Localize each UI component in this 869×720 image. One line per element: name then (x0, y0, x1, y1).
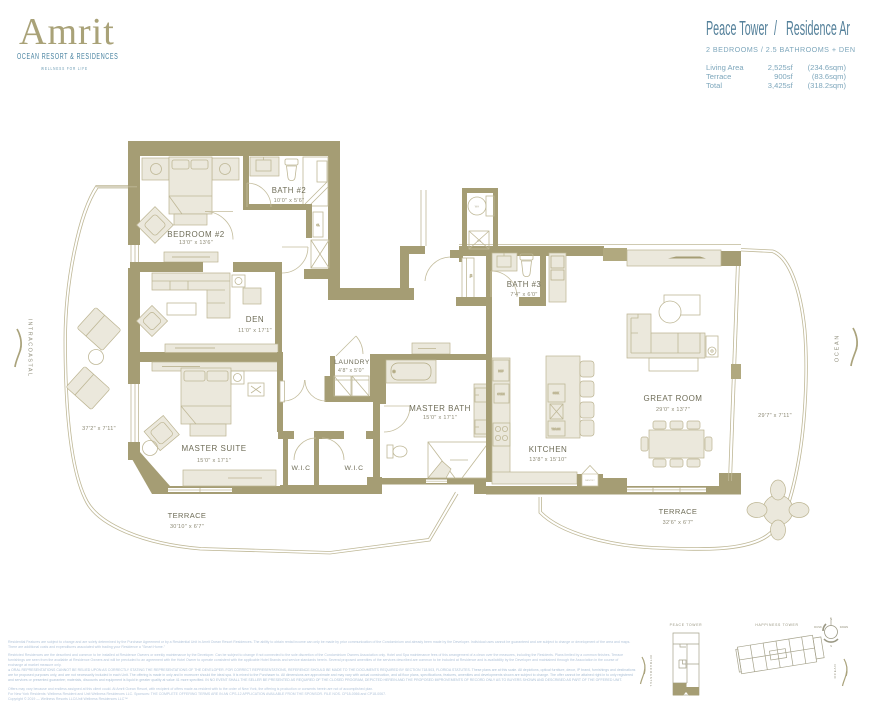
svg-text:TERRACE: TERRACE (168, 511, 207, 520)
svg-text:REF: REF (498, 370, 504, 373)
svg-text:MASTER BATH: MASTER BATH (409, 404, 471, 413)
svg-text:LAUNDRY: LAUNDRY (334, 359, 370, 366)
svg-text:HAPPINESS TOWER: HAPPINESS TOWER (755, 623, 798, 627)
svg-text:BEDROOM #2: BEDROOM #2 (167, 230, 225, 239)
svg-text:SINK: SINK (553, 392, 560, 395)
svg-text:29'0" x 13'7": 29'0" x 13'7" (656, 407, 690, 413)
svg-text:MASTER SUITE: MASTER SUITE (181, 444, 246, 453)
svg-text:15'0" x 17'1": 15'0" x 17'1" (197, 458, 231, 464)
svg-text:DAWN: DAWN (840, 625, 848, 629)
svg-text:13'8" x 15'10": 13'8" x 15'10" (529, 457, 566, 463)
svg-text:37'2" x 7'11": 37'2" x 7'11" (82, 426, 116, 432)
svg-text:GREAT ROOM: GREAT ROOM (644, 394, 703, 403)
svg-text:TRASH: TRASH (551, 428, 560, 431)
svg-text:PANTRY: PANTRY (585, 479, 595, 482)
svg-text:OCEAN: OCEAN (835, 334, 841, 362)
svg-text:INTRACOASTAL: INTRACOASTAL (649, 655, 653, 687)
svg-text:DUSK: DUSK (814, 625, 822, 629)
svg-text:N: N (830, 617, 833, 621)
svg-text:CL: CL (316, 223, 320, 227)
svg-text:29'7" x 7'11": 29'7" x 7'11" (758, 413, 792, 419)
svg-text:BATH #2: BATH #2 (272, 186, 307, 195)
svg-text:INTRACOASTAL: INTRACOASTAL (27, 319, 33, 378)
svg-text:10'0" x 5'6": 10'0" x 5'6" (274, 198, 305, 204)
svg-text:WH: WH (475, 206, 479, 209)
svg-text:DEN: DEN (246, 315, 264, 324)
svg-text:OVEN: OVEN (497, 393, 505, 396)
svg-text:PEACE TOWER: PEACE TOWER (670, 623, 703, 627)
svg-text:32'6" x 6'7": 32'6" x 6'7" (663, 520, 694, 526)
svg-text:30'10" x 6'7": 30'10" x 6'7" (170, 524, 204, 530)
svg-text:BATH #3: BATH #3 (507, 280, 542, 289)
svg-text:11'0" x 17'1": 11'0" x 17'1" (238, 328, 272, 334)
svg-text:W.I.C: W.I.C (344, 465, 363, 472)
svg-text:CL: CL (469, 274, 473, 278)
svg-text:A/C: A/C (477, 240, 482, 243)
svg-text:W.I.C: W.I.C (291, 465, 310, 472)
svg-text:TERRACE: TERRACE (659, 507, 698, 516)
svg-text:7'4" x 6'0": 7'4" x 6'0" (510, 292, 537, 298)
svg-text:15'0" x 17'1": 15'0" x 17'1" (423, 415, 457, 421)
svg-text:KITCHEN: KITCHEN (529, 445, 568, 454)
svg-text:S: S (830, 644, 832, 648)
svg-text:13'0" x 13'6": 13'0" x 13'6" (179, 240, 213, 246)
svg-text:OCEAN: OCEAN (833, 664, 837, 679)
svg-text:4'8" x 5'0": 4'8" x 5'0" (338, 368, 364, 374)
